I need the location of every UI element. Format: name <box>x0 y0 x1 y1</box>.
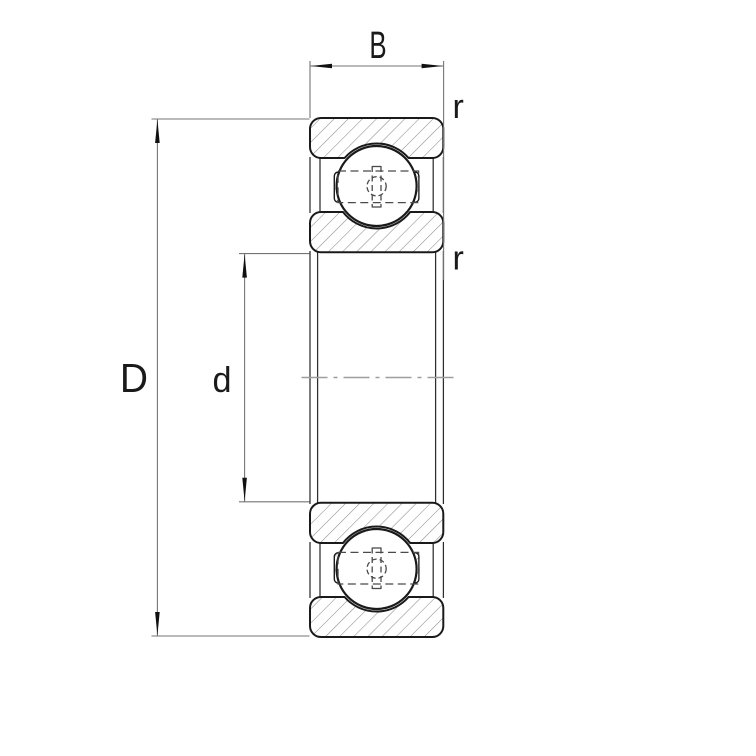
dimension-label-d: d <box>212 360 231 400</box>
dimension-label-B: B <box>369 24 386 66</box>
arrowhead-d-top <box>242 254 247 278</box>
dimension-bore-diameter-d: d <box>212 254 309 502</box>
ball-top <box>337 146 417 226</box>
arrowhead-D-top <box>155 119 160 143</box>
arrowhead-B-left <box>310 64 332 68</box>
radius-label-r-bottom: r <box>453 240 464 278</box>
arrowhead-B-right <box>422 64 444 68</box>
arrowhead-D-bottom <box>155 612 160 636</box>
drawing-canvas: B D d r r <box>0 0 756 756</box>
radius-label-r-top: r <box>453 88 464 126</box>
dimension-label-D: D <box>120 356 148 401</box>
arrowhead-d-bottom <box>242 478 247 502</box>
bearing-cross-section-drawing: B D d r r <box>0 0 756 756</box>
ball-bottom <box>337 529 417 609</box>
